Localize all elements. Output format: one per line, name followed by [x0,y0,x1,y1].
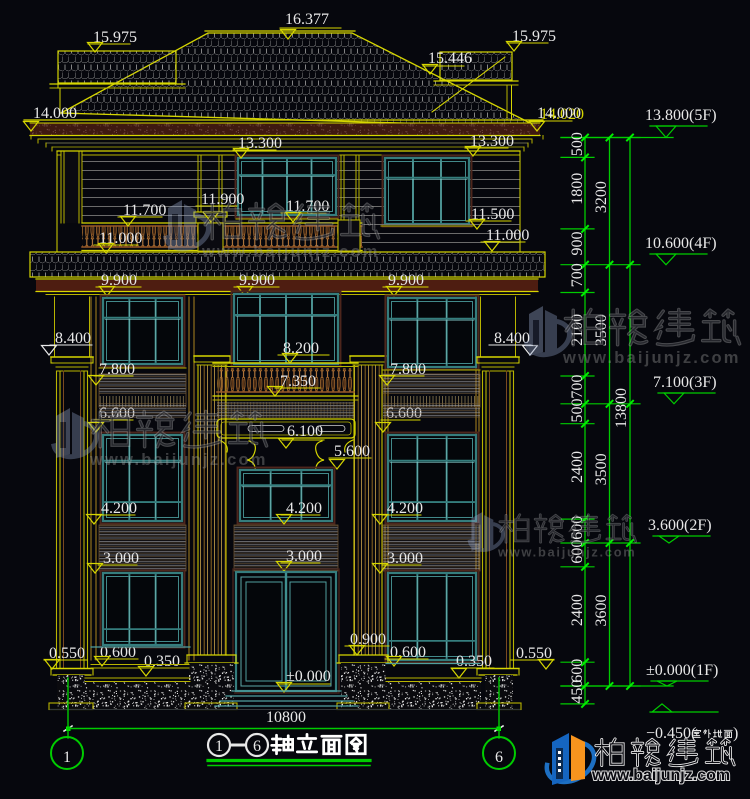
svg-text:11.900: 11.900 [201,191,244,208]
svg-text:15.975: 15.975 [512,28,556,45]
svg-text:4.200: 4.200 [387,500,423,517]
svg-text:7.800: 7.800 [390,361,426,378]
svg-text:3.000: 3.000 [387,550,423,567]
svg-text:900: 900 [569,232,586,256]
svg-text:6: 6 [253,738,261,755]
svg-text:500: 500 [569,398,586,422]
svg-text:6: 6 [495,749,503,766]
svg-text:700: 700 [569,375,586,399]
svg-text:6.100: 6.100 [287,423,323,440]
svg-text:5.600: 5.600 [334,443,370,460]
svg-text:600: 600 [569,659,586,683]
svg-text:1800: 1800 [569,173,586,205]
svg-text:www.baijunjz.com: www.baijunjz.com [562,349,741,367]
svg-text:2400: 2400 [569,451,586,483]
svg-text:±0.000(1F): ±0.000(1F) [646,662,718,679]
svg-text:8.200: 8.200 [283,340,319,357]
svg-text:4.200: 4.200 [101,500,137,517]
svg-text:www.baijunjz.com: www.baijunjz.com [89,451,268,469]
svg-text:13.300: 13.300 [470,133,514,150]
svg-text:3.600(2F): 3.600(2F) [648,517,712,534]
svg-text:700: 700 [569,263,586,287]
svg-text:±0.000: ±0.000 [286,668,331,685]
svg-text:500: 500 [569,132,586,156]
svg-text:11.500: 11.500 [471,206,514,223]
svg-text:15.975: 15.975 [93,29,137,46]
svg-text:13.800(5F): 13.800(5F) [645,107,717,124]
svg-text:1: 1 [215,738,223,755]
svg-text:3600: 3600 [593,595,610,627]
svg-text:10800: 10800 [266,709,306,726]
svg-text:13.300: 13.300 [238,135,282,152]
svg-text:2400: 2400 [569,594,586,626]
svg-text:−0.450(: −0.450( [646,725,696,742]
svg-text:7.800: 7.800 [99,361,135,378]
svg-text:0.350: 0.350 [144,653,180,670]
svg-text:www.baijunjz.com: www.baijunjz.com [497,544,636,559]
svg-text:www.baijunjz.com: www.baijunjz.com [591,767,730,784]
svg-text:14.000: 14.000 [537,105,581,122]
svg-text:3500: 3500 [593,453,610,485]
svg-text:7.100(3F): 7.100(3F) [653,374,717,391]
svg-text:0.600: 0.600 [390,644,426,661]
svg-text:7.350: 7.350 [280,373,316,390]
svg-text:16.377: 16.377 [285,11,329,28]
svg-text:450: 450 [569,680,586,704]
svg-text:11.000: 11.000 [99,230,142,247]
svg-text:): ) [733,725,738,742]
svg-text:3.000: 3.000 [103,550,139,567]
svg-text:13800: 13800 [613,388,630,428]
svg-text:3200: 3200 [593,181,610,213]
svg-text:0.350: 0.350 [456,653,492,670]
svg-text:10.600(4F): 10.600(4F) [645,235,717,252]
svg-text:www.baijunjz.com: www.baijunjz.com [201,243,380,261]
svg-text:8.400: 8.400 [55,330,91,347]
svg-text:14.000: 14.000 [33,105,77,122]
svg-text:1: 1 [63,749,71,766]
